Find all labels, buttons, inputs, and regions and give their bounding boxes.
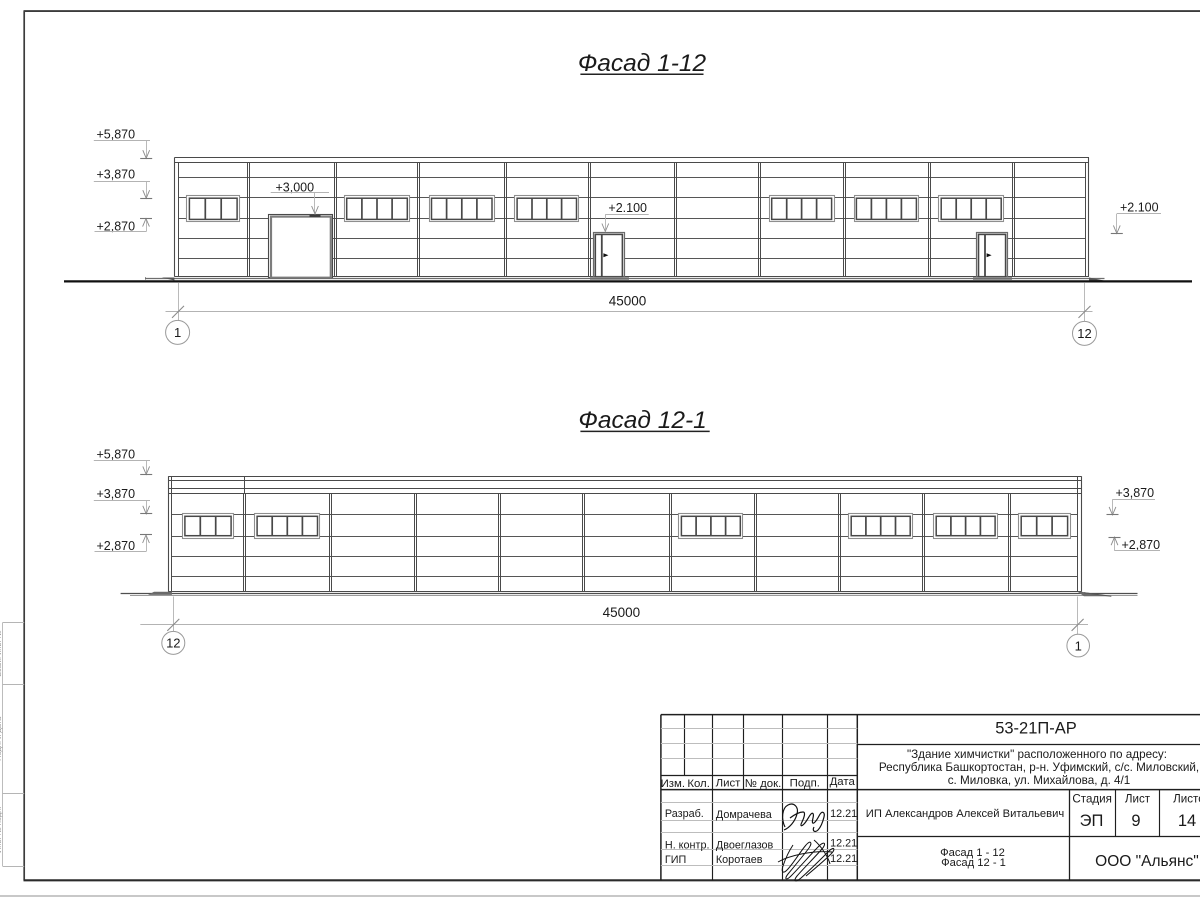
svg-text:ЭП: ЭП: [1080, 812, 1104, 830]
svg-text:1: 1: [1075, 638, 1082, 653]
svg-text:1: 1: [174, 325, 181, 340]
svg-text:ООО "Альянс": ООО "Альянс": [1095, 853, 1199, 870]
svg-text:53-21П-АР: 53-21П-АР: [995, 720, 1077, 738]
svg-text:Разраб.: Разраб.: [665, 808, 704, 820]
svg-text:Фасад 12 - 1: Фасад 12 - 1: [941, 857, 1006, 869]
svg-text:12.21: 12.21: [830, 853, 857, 865]
svg-text:45000: 45000: [609, 294, 647, 309]
svg-text:Подп. и дата: Подп. и дата: [0, 716, 3, 761]
svg-text:+5,870: +5,870: [97, 128, 136, 142]
svg-text:Стадия: Стадия: [1072, 793, 1112, 806]
svg-text:Фасад 1-12: Фасад 1-12: [578, 50, 707, 77]
svg-text:+2.100: +2.100: [1120, 200, 1159, 214]
svg-text:Взам. инв. №: Взам. инв. №: [0, 630, 3, 676]
svg-text:+3,870: +3,870: [97, 487, 136, 501]
svg-text:+2,870: +2,870: [97, 539, 136, 553]
svg-text:12: 12: [166, 636, 180, 651]
svg-text:Двоеглазов: Двоеглазов: [716, 839, 774, 851]
svg-text:Изм.: Изм.: [661, 778, 685, 790]
svg-text:Подп.: Подп.: [790, 778, 820, 790]
svg-text:14: 14: [1178, 812, 1196, 830]
svg-text:Листов: Листов: [1173, 793, 1200, 806]
svg-text:Лист: Лист: [1125, 793, 1151, 806]
svg-text:9: 9: [1131, 812, 1140, 830]
svg-text:Лист: Лист: [716, 778, 742, 790]
svg-text:"Здание химчистки" расположенн: "Здание химчистки" расположенного по адр…: [907, 748, 1167, 761]
svg-text:12: 12: [1077, 326, 1091, 341]
svg-text:ИП Александров Алексей Виталье: ИП Александров Алексей Витальевич: [866, 808, 1065, 820]
svg-text:Н. контр.: Н. контр.: [665, 839, 710, 851]
svg-text:+5,870: +5,870: [97, 447, 136, 461]
svg-text:Фасад 12-1: Фасад 12-1: [578, 407, 706, 434]
svg-text:Республика Башкортостан, р-н.: Республика Башкортостан, р-н. Уфимский, …: [879, 761, 1199, 774]
svg-text:Дата: Дата: [830, 776, 856, 788]
svg-text:№ док.: № док.: [745, 778, 782, 790]
svg-text:45000: 45000: [603, 605, 641, 620]
svg-text:Кол.: Кол.: [687, 778, 710, 790]
svg-text:Домрачева: Домрачева: [716, 809, 772, 821]
svg-text:Инв. № подл.: Инв. № подл.: [0, 806, 3, 853]
svg-text:+2.100: +2.100: [608, 201, 647, 215]
svg-text:Коротаев: Коротаев: [716, 854, 763, 866]
svg-text:с. Миловка, ул. Михайлова, д.: с. Миловка, ул. Михайлова, д. 4/1: [948, 774, 1131, 787]
svg-text:+3,870: +3,870: [1116, 486, 1155, 500]
svg-text:ГИП: ГИП: [665, 854, 686, 866]
svg-text:+3,870: +3,870: [97, 167, 136, 181]
svg-text:12.21: 12.21: [830, 808, 857, 820]
svg-text:12.21: 12.21: [830, 838, 857, 850]
